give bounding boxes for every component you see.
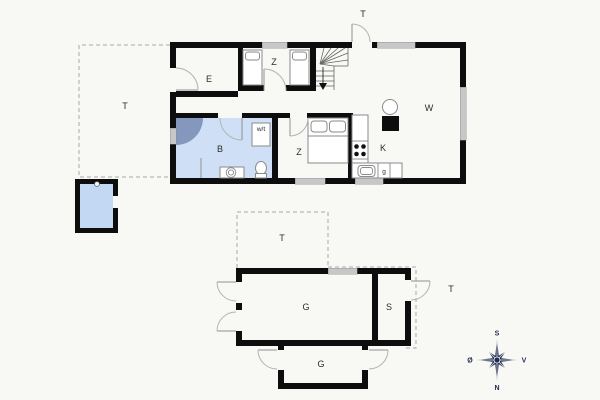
living-room-label: W	[425, 103, 434, 113]
wall-bedroom-bottom-left	[243, 85, 264, 91]
entrance-label: E	[206, 74, 212, 84]
shed-label: S	[386, 302, 392, 312]
annex-door-arc-right	[369, 350, 388, 369]
appliance-label: g	[382, 169, 386, 176]
annex-door-arc-left	[258, 350, 277, 369]
washer-dryer-label: w/t	[256, 126, 266, 133]
stair-down-arrow	[319, 83, 327, 90]
floorplan-canvas: S V N Ø E Z B w/t Z K g W T T T T G S G	[0, 0, 600, 400]
double-bed-pillow-left	[311, 121, 327, 132]
annex-door-opening-left	[278, 350, 284, 370]
twin-bed-left-pillow	[246, 52, 260, 60]
garage-door-arc-lower	[217, 312, 236, 331]
bedroom-top-label: Z	[271, 57, 277, 67]
terrace-top-label: T	[360, 9, 366, 19]
garage-lower-label: G	[317, 359, 324, 369]
wall-bath-east	[272, 113, 278, 178]
garage-door-arc-upper	[217, 282, 236, 301]
wood-stove	[382, 116, 399, 131]
window-east-living	[460, 87, 466, 140]
bathroom-label: B	[217, 144, 223, 154]
bedroom-top-door-arc	[264, 69, 286, 91]
terrace-garage-right-label: T	[448, 284, 454, 294]
terrace-left-outline	[79, 45, 170, 177]
annex-door-opening-right	[362, 350, 368, 370]
toilet-tank	[256, 174, 267, 179]
wall-entrance-bottom	[176, 91, 238, 97]
window-west-bathroom	[170, 128, 176, 144]
pool-water	[80, 184, 113, 228]
bedroom-mid-label: Z	[296, 147, 302, 157]
compass-north-label: N	[494, 385, 499, 392]
compass-hub	[494, 357, 500, 363]
garage-wall-bottom	[236, 340, 411, 346]
garage-window	[328, 268, 357, 274]
compass-rose: S V N Ø	[467, 331, 526, 393]
burner-dot	[354, 152, 359, 157]
terrace-left-label: T	[122, 101, 128, 111]
wall-entrance-bedroom	[238, 48, 243, 91]
garage-door-opening-lower	[236, 310, 242, 331]
window-top-bedroom	[262, 42, 287, 48]
garage-shed-divider	[372, 268, 378, 346]
compass-west-label: V	[522, 358, 527, 365]
window-south-kitchen	[355, 178, 383, 184]
garage-main-label: G	[302, 302, 309, 312]
wall-bedroom2-top-right	[307, 113, 353, 118]
toilet-bowl	[256, 162, 267, 175]
compass-east-label: Ø	[467, 358, 473, 365]
floorplan-drawing: S V N Ø E Z B w/t Z K g W T T T T G S G	[0, 0, 600, 400]
kitchen-label: K	[380, 143, 386, 153]
double-bed-pillow-right	[330, 121, 346, 132]
burner-dot	[361, 144, 366, 149]
pool-house	[75, 179, 118, 233]
window-south-bedroom2	[295, 178, 325, 184]
house-wall-top	[170, 42, 466, 48]
pool-house-opening	[113, 196, 118, 208]
shed-door-opening	[405, 280, 411, 301]
stair-tread	[320, 64, 334, 66]
outbuilding	[217, 268, 430, 389]
garage-wall-right	[405, 268, 411, 346]
window-top-living	[377, 42, 415, 48]
garage-wall-top	[236, 268, 411, 274]
compass-south-label: S	[495, 331, 500, 338]
wall-bedroom2-top-left	[278, 113, 290, 118]
entrance-side-door-opening	[170, 68, 176, 92]
twin-bed-right-pillow	[293, 52, 307, 60]
entry-door-opening	[352, 42, 372, 48]
house-wall-left	[170, 42, 176, 184]
kitchen-counter-vertical	[352, 115, 368, 165]
round-table	[383, 100, 398, 115]
burner-dot	[361, 152, 366, 157]
shed-door-arc	[411, 281, 430, 300]
terrace-garage-top-label: T	[279, 233, 285, 243]
pool-valve	[95, 182, 100, 187]
bedroom-mid-door-arc	[290, 118, 308, 136]
garage-wall-left	[236, 268, 242, 346]
annex-wall-bottom	[278, 383, 368, 389]
burner-dot	[354, 144, 359, 149]
wall-bath-top-left	[176, 113, 218, 118]
garage-door-opening-upper	[236, 282, 242, 303]
washbasin-counter	[220, 167, 244, 178]
entry-door-arc	[352, 24, 370, 42]
staircase	[316, 48, 348, 90]
wall-bedroom-stairs	[310, 48, 316, 91]
entrance-side-door-arc	[176, 68, 198, 90]
